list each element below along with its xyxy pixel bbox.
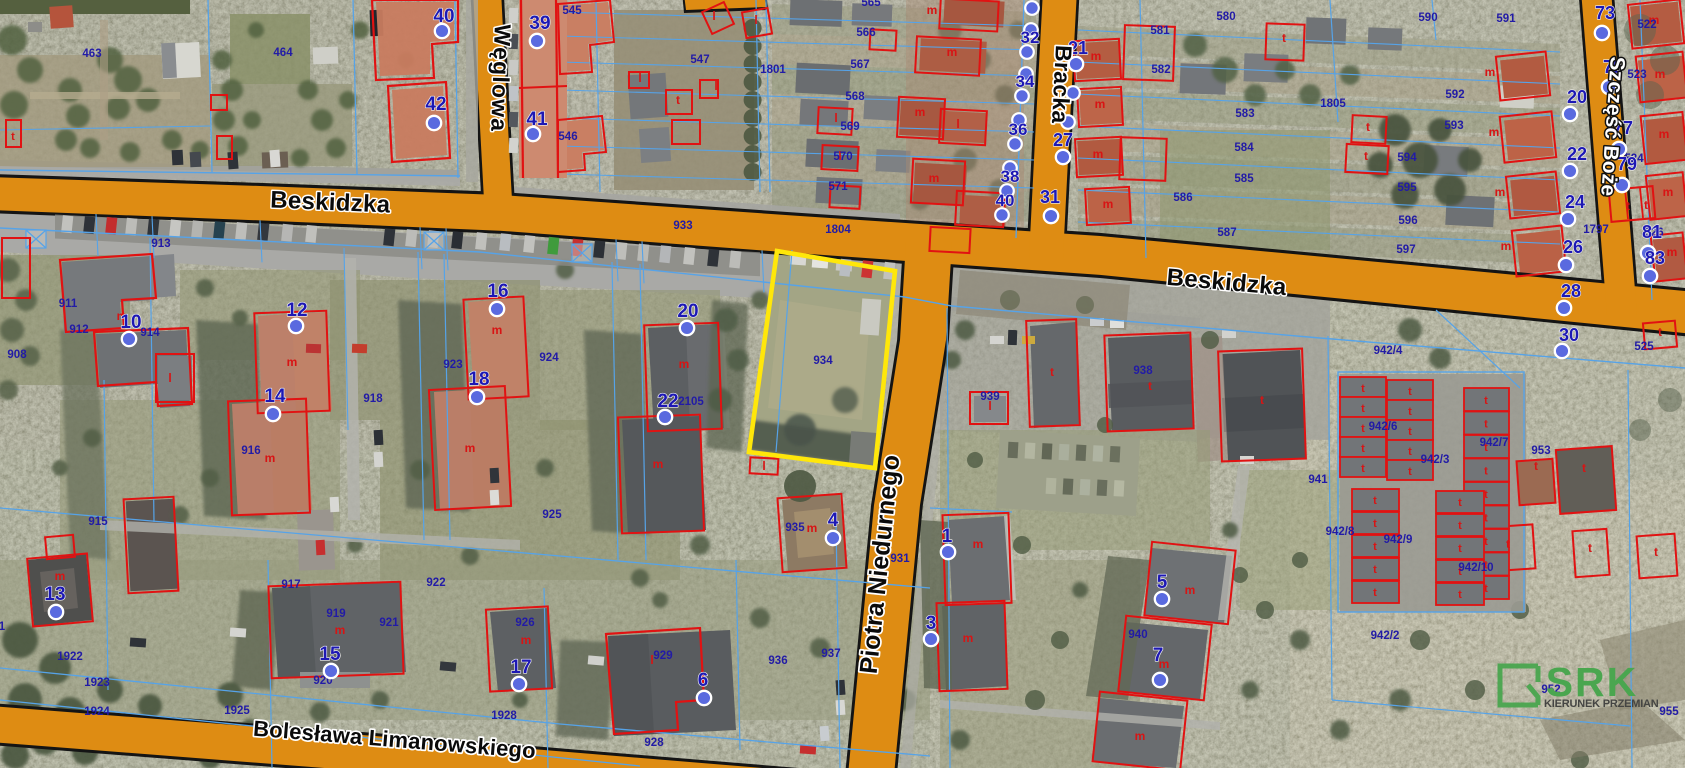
svg-text:m: m: [55, 569, 66, 583]
svg-text:t: t: [1534, 459, 1538, 473]
svg-text:m: m: [287, 355, 298, 369]
svg-text:m: m: [1489, 125, 1500, 139]
svg-text:1: 1: [0, 621, 6, 633]
svg-text:935: 935: [785, 522, 805, 534]
svg-text:18: 18: [468, 369, 489, 390]
svg-text:36: 36: [1009, 120, 1028, 139]
svg-text:83: 83: [1645, 248, 1665, 268]
svg-text:914: 914: [140, 327, 160, 339]
svg-text:1797: 1797: [1583, 224, 1609, 236]
svg-text:911: 911: [59, 298, 78, 310]
svg-text:7: 7: [1153, 645, 1164, 666]
svg-text:10: 10: [120, 312, 141, 333]
svg-text:587: 587: [1217, 227, 1236, 239]
svg-text:17: 17: [510, 657, 531, 678]
svg-text:593: 593: [1444, 120, 1463, 132]
svg-text:t: t: [1373, 518, 1377, 530]
svg-text:923: 923: [443, 359, 462, 371]
svg-text:936: 936: [768, 655, 787, 667]
svg-text:l: l: [956, 117, 959, 131]
svg-text:567: 567: [850, 59, 869, 71]
svg-text:t: t: [1148, 379, 1152, 393]
svg-text:16: 16: [487, 281, 508, 302]
svg-text:t: t: [1506, 537, 1510, 551]
svg-text:568: 568: [845, 91, 865, 103]
svg-text:t: t: [1373, 587, 1377, 599]
svg-text:t: t: [1408, 386, 1412, 398]
svg-text:t: t: [1373, 541, 1377, 553]
svg-text:937: 937: [821, 648, 840, 660]
svg-text:546: 546: [558, 131, 577, 143]
svg-text:464: 464: [273, 47, 293, 59]
svg-text:580: 580: [1216, 11, 1235, 23]
svg-text:Bracka: Bracka: [1047, 45, 1077, 125]
svg-text:t: t: [1366, 120, 1370, 134]
svg-text:t: t: [1484, 395, 1488, 407]
svg-text:925: 925: [542, 509, 562, 521]
svg-text:1922: 1922: [57, 651, 83, 663]
svg-text:596: 596: [1398, 215, 1417, 227]
svg-text:t: t: [1260, 393, 1264, 407]
svg-text:942/2: 942/2: [1371, 630, 1400, 642]
svg-text:l: l: [712, 9, 715, 23]
svg-text:525: 525: [1634, 341, 1654, 353]
svg-text:m: m: [915, 105, 926, 119]
svg-text:581: 581: [1150, 25, 1170, 37]
svg-text:34: 34: [1016, 72, 1035, 91]
svg-text:m: m: [265, 451, 276, 465]
svg-text:565: 565: [861, 0, 881, 9]
svg-text:t: t: [1361, 403, 1365, 415]
svg-text:583: 583: [1235, 108, 1254, 120]
svg-text:t: t: [1408, 466, 1412, 478]
svg-text:m: m: [492, 323, 503, 337]
svg-text:m: m: [927, 3, 938, 17]
svg-text:24: 24: [1565, 192, 1585, 212]
svg-text:928: 928: [644, 737, 664, 749]
svg-text:t: t: [1373, 564, 1377, 576]
svg-text:m: m: [1095, 97, 1106, 111]
svg-text:38: 38: [1001, 167, 1020, 186]
svg-text:942/3: 942/3: [1421, 454, 1450, 466]
svg-text:t: t: [1361, 463, 1365, 475]
svg-text:t: t: [1582, 461, 1586, 475]
svg-text:31: 31: [1040, 187, 1060, 207]
svg-text:1925: 1925: [224, 705, 250, 717]
svg-text:942/4: 942/4: [1374, 345, 1403, 357]
svg-text:l: l: [754, 13, 757, 27]
svg-text:m: m: [521, 633, 532, 647]
svg-text:942/6: 942/6: [1369, 421, 1398, 433]
svg-text:t: t: [11, 131, 15, 143]
svg-text:1804: 1804: [825, 224, 851, 236]
svg-text:916: 916: [241, 445, 260, 457]
svg-text:39: 39: [529, 13, 550, 34]
svg-text:570: 570: [833, 151, 852, 163]
svg-text:m: m: [465, 441, 476, 455]
svg-text:919: 919: [326, 608, 345, 620]
svg-text:m: m: [335, 623, 346, 637]
svg-text:m: m: [1093, 147, 1104, 161]
svg-text:1923: 1923: [84, 677, 110, 689]
svg-text:t: t: [1484, 466, 1488, 478]
svg-text:t: t: [1654, 545, 1658, 559]
svg-text:955: 955: [1659, 706, 1679, 718]
svg-text:586: 586: [1173, 192, 1192, 204]
svg-text:m: m: [1135, 729, 1146, 743]
svg-text:939: 939: [980, 391, 999, 403]
svg-text:2105: 2105: [678, 396, 704, 408]
svg-text:27: 27: [1053, 130, 1073, 150]
svg-text:28: 28: [1561, 281, 1581, 301]
svg-text:l: l: [638, 71, 641, 85]
svg-text:t: t: [1364, 149, 1368, 163]
svg-text:912: 912: [69, 324, 88, 336]
svg-text:t: t: [1361, 443, 1365, 455]
svg-text:585: 585: [1234, 173, 1254, 185]
svg-text:1924: 1924: [84, 706, 110, 718]
svg-text:933: 933: [673, 220, 692, 232]
svg-text:t: t: [1588, 541, 1592, 555]
svg-text:Beskidzka: Beskidzka: [270, 186, 392, 218]
svg-text:13: 13: [44, 584, 65, 605]
svg-text:591: 591: [1496, 13, 1516, 25]
svg-text:590: 590: [1418, 12, 1437, 24]
svg-text:l: l: [834, 111, 837, 125]
svg-text:5: 5: [1157, 572, 1168, 593]
svg-text:30: 30: [1559, 325, 1579, 345]
svg-text:m: m: [1501, 239, 1512, 253]
svg-text:m: m: [1485, 65, 1496, 79]
svg-text:926: 926: [515, 617, 534, 629]
svg-text:1928: 1928: [491, 710, 517, 722]
svg-text:32: 32: [1021, 28, 1040, 47]
svg-text:t: t: [1458, 520, 1462, 532]
svg-text:595: 595: [1397, 182, 1417, 194]
svg-text:t: t: [1458, 589, 1462, 601]
svg-text:m: m: [947, 45, 958, 59]
svg-text:t: t: [1484, 419, 1488, 431]
svg-text:t: t: [1626, 199, 1630, 213]
svg-text:t: t: [1361, 383, 1365, 395]
svg-text:t: t: [1408, 426, 1412, 438]
svg-text:942/8: 942/8: [1326, 526, 1355, 538]
svg-text:22: 22: [1567, 144, 1587, 164]
svg-text:941: 941: [1308, 474, 1328, 486]
svg-text:1805: 1805: [1320, 98, 1346, 110]
svg-text:918: 918: [363, 393, 383, 405]
svg-text:592: 592: [1445, 89, 1464, 101]
svg-text:942/9: 942/9: [1384, 534, 1413, 546]
svg-text:m: m: [807, 521, 818, 535]
svg-text:t: t: [1458, 497, 1462, 509]
svg-text:22: 22: [657, 391, 678, 412]
svg-text:463: 463: [82, 48, 101, 60]
svg-text:m: m: [1663, 185, 1674, 199]
svg-text:924: 924: [539, 352, 559, 364]
svg-text:545: 545: [562, 5, 582, 17]
svg-text:15: 15: [319, 644, 341, 665]
svg-text:922: 922: [426, 577, 445, 589]
svg-text:t: t: [1282, 31, 1286, 45]
svg-text:547: 547: [690, 54, 709, 66]
svg-text:913: 913: [151, 238, 170, 250]
svg-text:m: m: [929, 171, 940, 185]
svg-text:582: 582: [1151, 64, 1170, 76]
svg-text:42: 42: [425, 94, 446, 115]
svg-text:566: 566: [856, 27, 875, 39]
svg-text:953: 953: [1531, 445, 1550, 457]
svg-text:m: m: [973, 537, 984, 551]
svg-text:4: 4: [828, 510, 839, 531]
svg-text:l: l: [714, 79, 717, 93]
svg-text:584: 584: [1234, 142, 1254, 154]
svg-text:942/7: 942/7: [1480, 437, 1509, 449]
svg-text:m: m: [1091, 49, 1102, 63]
svg-text:20: 20: [677, 301, 698, 322]
svg-text:t: t: [1373, 495, 1377, 507]
svg-text:73: 73: [1595, 3, 1615, 23]
svg-text:26: 26: [1563, 237, 1583, 257]
svg-text:t: t: [1458, 543, 1462, 555]
svg-text:Węglowa: Węglowa: [486, 24, 516, 133]
svg-text:t: t: [1408, 406, 1412, 418]
svg-text:81: 81: [1642, 222, 1662, 242]
svg-text:t: t: [676, 93, 680, 107]
svg-text:20: 20: [1567, 87, 1587, 107]
svg-text:934: 934: [813, 355, 833, 367]
svg-text:942/10: 942/10: [1458, 562, 1493, 574]
svg-text:522: 522: [1637, 19, 1656, 31]
svg-text:597: 597: [1396, 244, 1415, 256]
svg-text:t: t: [1050, 365, 1054, 379]
svg-text:908: 908: [7, 349, 27, 361]
svg-text:14: 14: [264, 386, 286, 407]
svg-text:m: m: [1185, 583, 1196, 597]
svg-text:929: 929: [653, 650, 672, 662]
svg-text:l: l: [762, 459, 765, 473]
svg-text:l: l: [168, 371, 171, 385]
svg-text:m: m: [1659, 127, 1670, 141]
svg-text:m: m: [653, 457, 664, 471]
svg-text:915: 915: [88, 516, 108, 528]
svg-text:m: m: [963, 631, 974, 645]
svg-text:m: m: [1667, 245, 1678, 259]
svg-text:KIERUNEK PRZEMIAN: KIERUNEK PRZEMIAN: [1544, 698, 1659, 710]
svg-text:1801: 1801: [760, 64, 786, 76]
svg-text:m: m: [1495, 185, 1506, 199]
svg-text:t: t: [1658, 325, 1662, 339]
svg-text:40: 40: [996, 191, 1015, 210]
svg-text:921: 921: [379, 617, 399, 629]
svg-text:571: 571: [828, 181, 848, 193]
svg-text:t: t: [1408, 446, 1412, 458]
svg-text:m: m: [1103, 197, 1114, 211]
svg-text:t: t: [1644, 198, 1648, 212]
svg-text:m: m: [679, 357, 690, 371]
svg-text:523: 523: [1627, 69, 1646, 81]
svg-text:594: 594: [1397, 152, 1417, 164]
svg-text:917: 917: [281, 579, 300, 591]
svg-text:938: 938: [1133, 365, 1153, 377]
svg-text:t: t: [1361, 423, 1365, 435]
svg-text:569: 569: [840, 121, 859, 133]
svg-text:6: 6: [698, 670, 709, 691]
svg-text:940: 940: [1128, 629, 1147, 641]
svg-text:m: m: [1655, 67, 1666, 81]
